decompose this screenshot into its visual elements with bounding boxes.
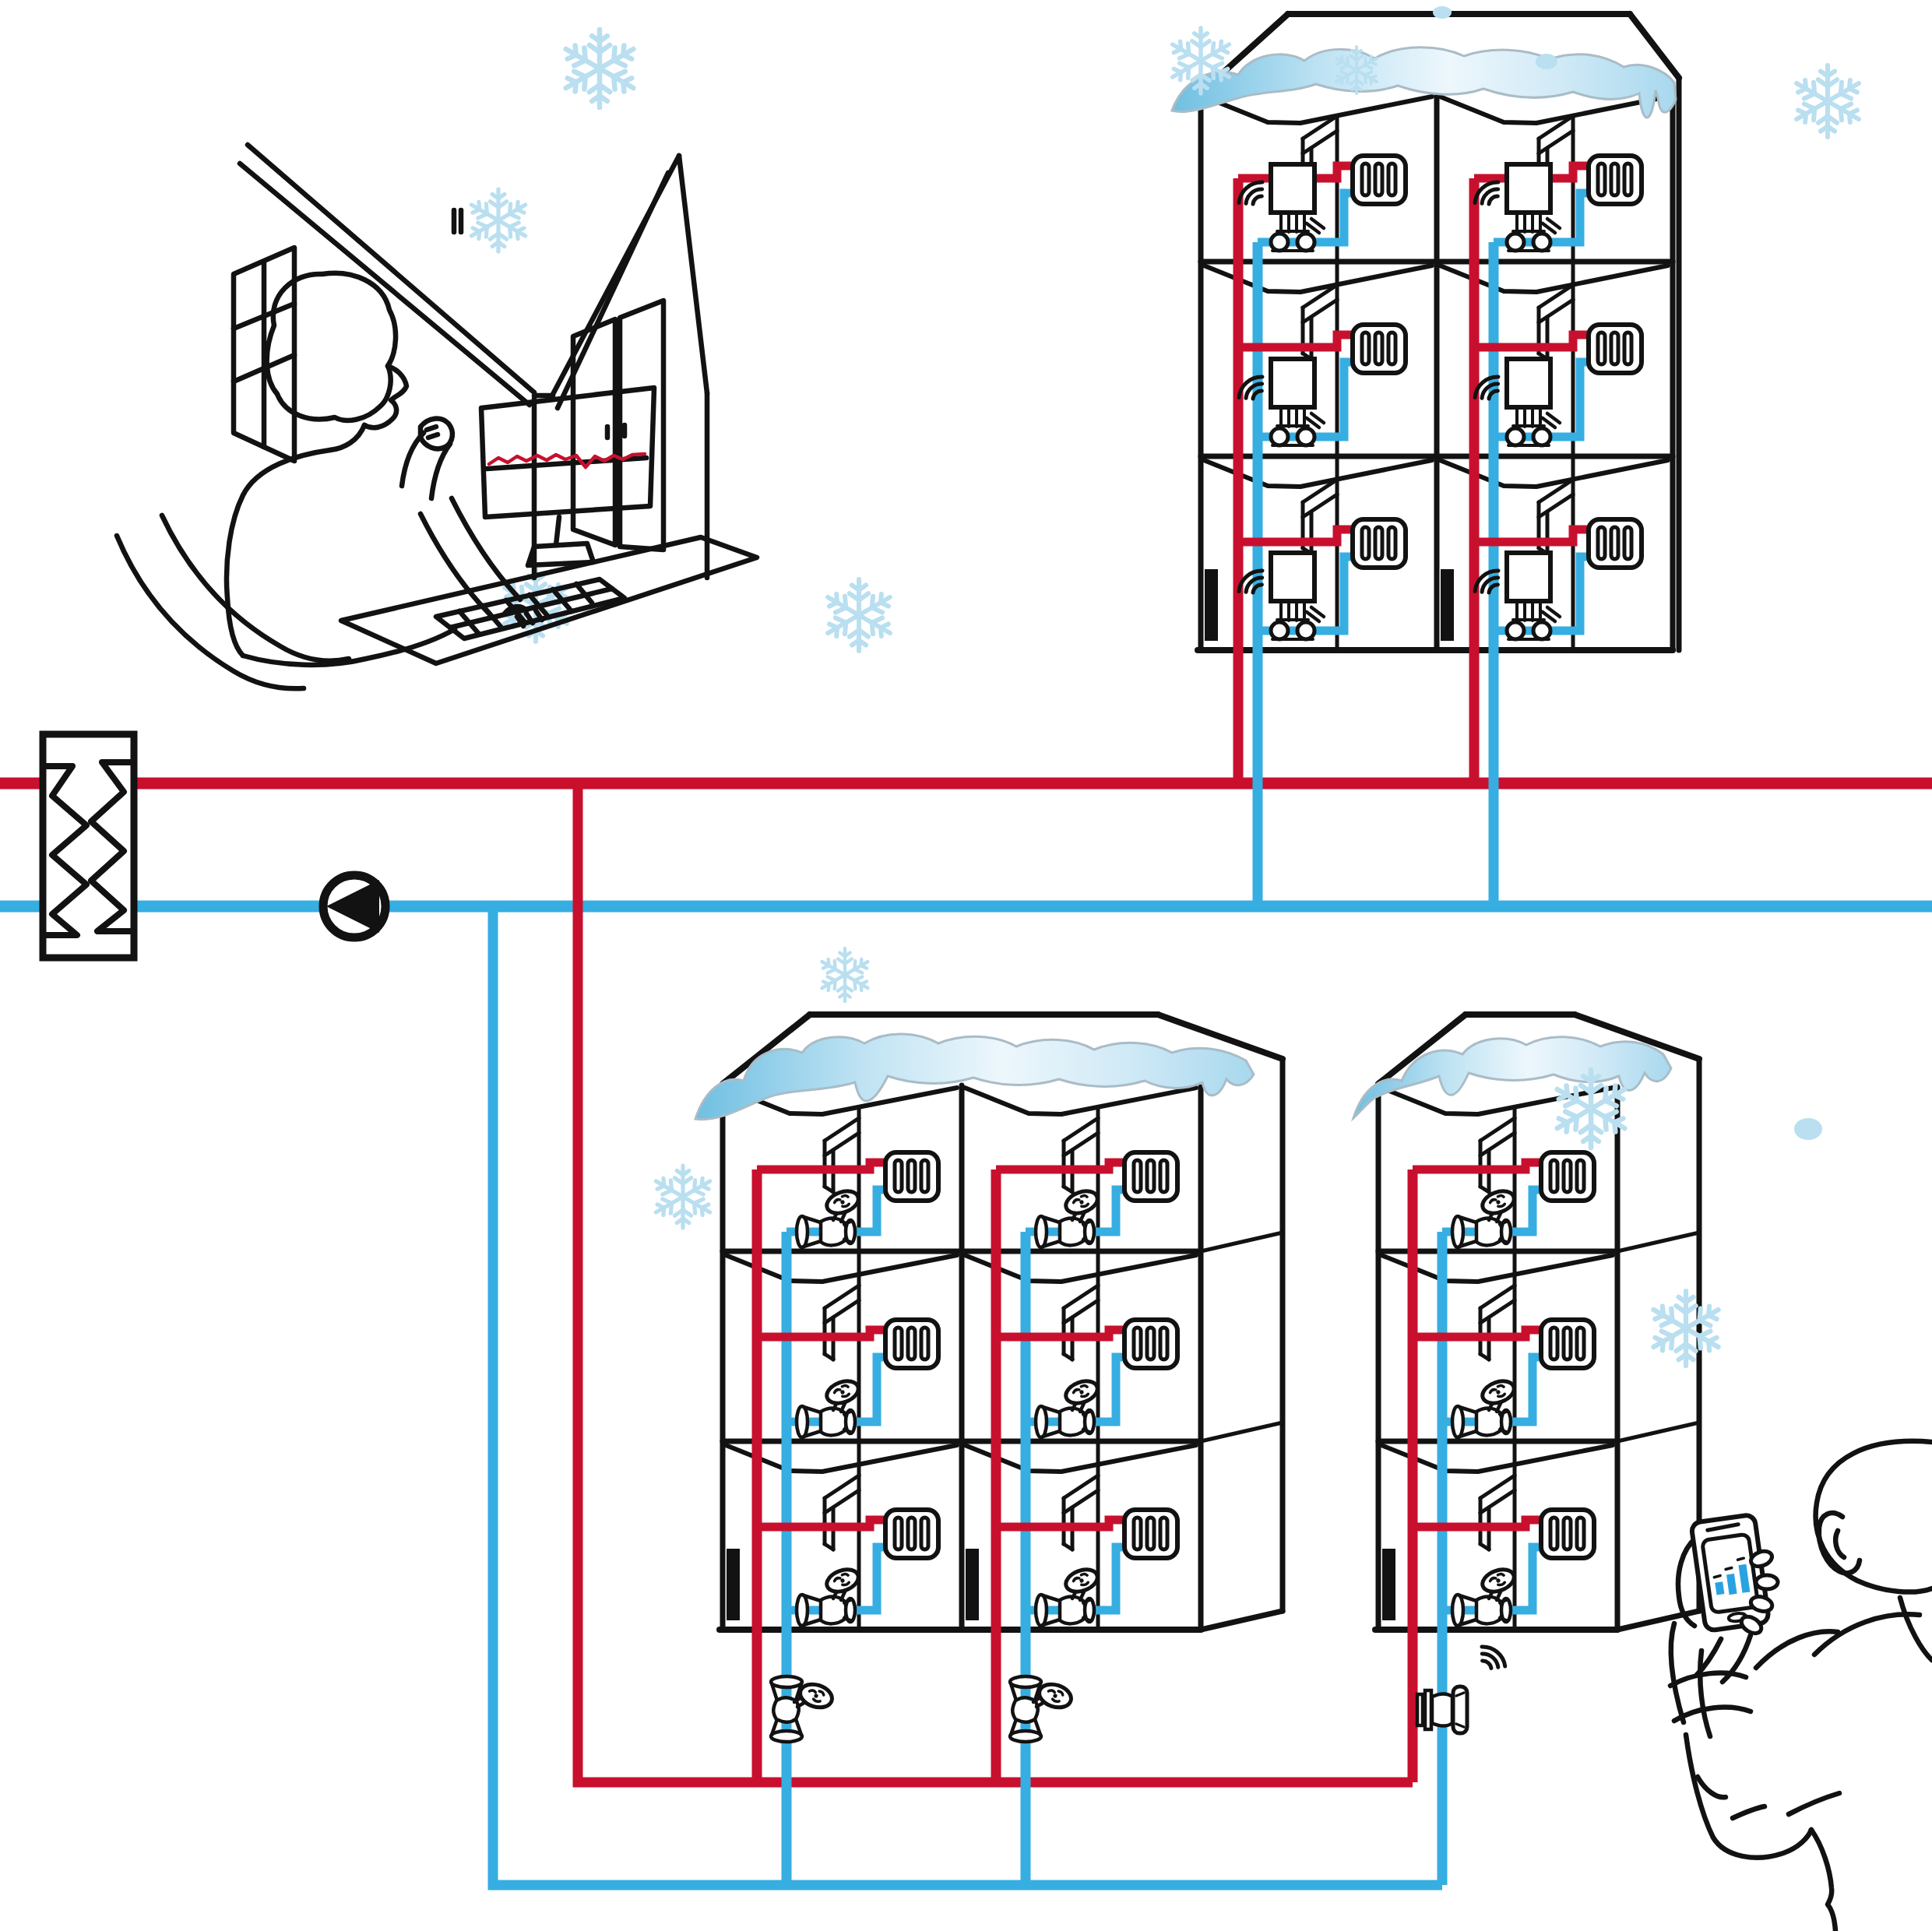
snowflake-icon [1797, 65, 1859, 137]
finger [1756, 1575, 1778, 1589]
smartphone-icon [1691, 1514, 1769, 1631]
buildings-outlines [720, 14, 1699, 1630]
window-icon [1064, 1476, 1098, 1549]
valve-handwheel [1480, 1377, 1517, 1408]
radiators-and-valves [771, 156, 1642, 1742]
snowflake-icon [828, 579, 890, 651]
window-icon [825, 1118, 859, 1192]
valve-handwheel [1480, 1566, 1517, 1596]
radiator-icon [885, 1510, 938, 1558]
snow-dot [1794, 1118, 1822, 1140]
operator-room-scene [117, 145, 757, 688]
snowflake-icon [822, 948, 868, 1001]
valve-handwheel [1063, 1377, 1100, 1408]
radiator-icon [1124, 1320, 1177, 1368]
radiator-icon [1353, 156, 1406, 204]
radiator-icon [1124, 1152, 1177, 1201]
snowflake-icon [656, 1166, 709, 1228]
snowflake-icon [471, 189, 525, 251]
smart-radiator-actuator-icon [1475, 359, 1560, 445]
window-icon [1064, 1118, 1098, 1192]
radiator-icon [885, 1320, 938, 1368]
heat-exchanger-icon [43, 734, 134, 958]
manual-balancing-valve-icon [797, 1566, 861, 1626]
illustration-stage [0, 0, 1932, 1931]
ground-wireless-valve-icon [1417, 1647, 1505, 1733]
snowflake-icon [566, 30, 634, 107]
window-icon [825, 1476, 859, 1549]
radiator-icon [1124, 1510, 1177, 1558]
snow-dot [1536, 54, 1557, 69]
smart-radiator-actuator-icon [1475, 553, 1560, 639]
supply-riser-top [1238, 166, 1595, 783]
window-icon [1480, 1118, 1515, 1192]
valve-handwheel [1036, 1680, 1075, 1711]
radiator-icon [885, 1152, 938, 1201]
valve-handwheel [824, 1566, 861, 1596]
radiator-icon [1353, 519, 1406, 568]
valve-handwheel [1063, 1566, 1100, 1596]
snowflake-icon [1557, 1070, 1625, 1148]
manual-balancing-valve-icon [1036, 1187, 1100, 1247]
manual-balancing-valve-icon [797, 1187, 861, 1247]
valve-handwheel [824, 1377, 861, 1408]
smart-radiator-actuator-icon [1239, 553, 1324, 639]
manual-balancing-valve-icon [1036, 1566, 1100, 1626]
manual-balancing-valve-icon [1452, 1187, 1517, 1247]
window-icon [825, 1286, 859, 1359]
window-icon [1480, 1476, 1515, 1549]
smart-radiator-actuator-icon [1239, 359, 1324, 445]
district-heating-diagram [0, 0, 1932, 1931]
heat-exchanger-and-pump [43, 734, 385, 958]
snowflake-icon [1653, 1291, 1718, 1366]
window-icon [1480, 1286, 1515, 1359]
roof-snow-cap [695, 1034, 1254, 1120]
manual-balancing-valve-icon [1452, 1566, 1517, 1626]
manual-balancing-valve-icon [1036, 1377, 1100, 1437]
resident-phone-scene [1670, 1441, 1932, 1931]
pump-icon [323, 875, 385, 937]
building-bottom-right [1375, 1015, 1699, 1630]
manual-balancing-valve-icon [1452, 1377, 1517, 1437]
ground-manual-valve-icon [1010, 1676, 1074, 1742]
radiator-icon [1541, 1320, 1594, 1368]
radiator-icon [1589, 325, 1642, 373]
radiator-icon [1541, 1510, 1594, 1558]
radiator-icon [1589, 519, 1642, 568]
snow-dot [1433, 6, 1452, 19]
window-icon [1064, 1286, 1098, 1359]
roof-snow-cap [1172, 47, 1676, 118]
ground-manual-valve-icon [771, 1676, 835, 1742]
wireless-signal-icon [1482, 1647, 1505, 1668]
manual-balancing-valve-icon [797, 1377, 861, 1437]
valve-handwheel [797, 1680, 836, 1711]
radiator-icon [1589, 156, 1642, 204]
radiator-icon [1541, 1152, 1594, 1201]
radiator-icon [1353, 325, 1406, 373]
